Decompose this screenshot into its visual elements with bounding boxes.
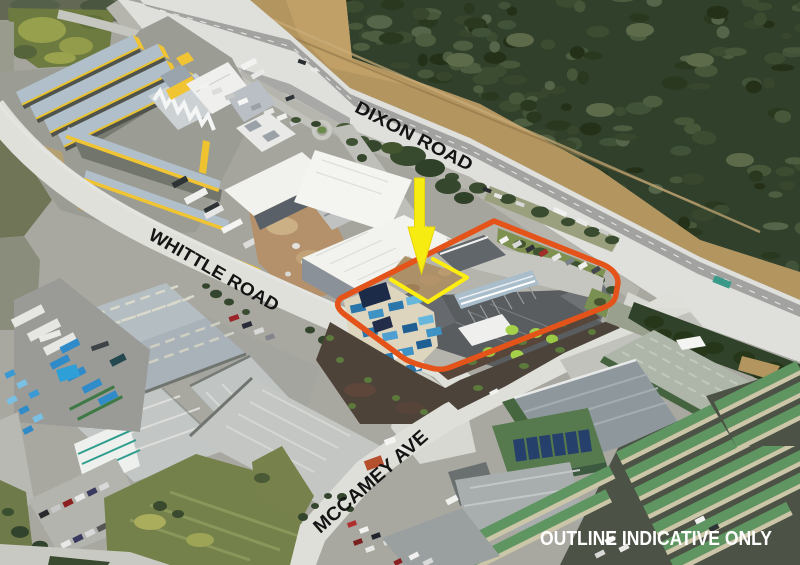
svg-text:OUTLINE INDICATIVE ONLY: OUTLINE INDICATIVE ONLY (540, 528, 773, 550)
